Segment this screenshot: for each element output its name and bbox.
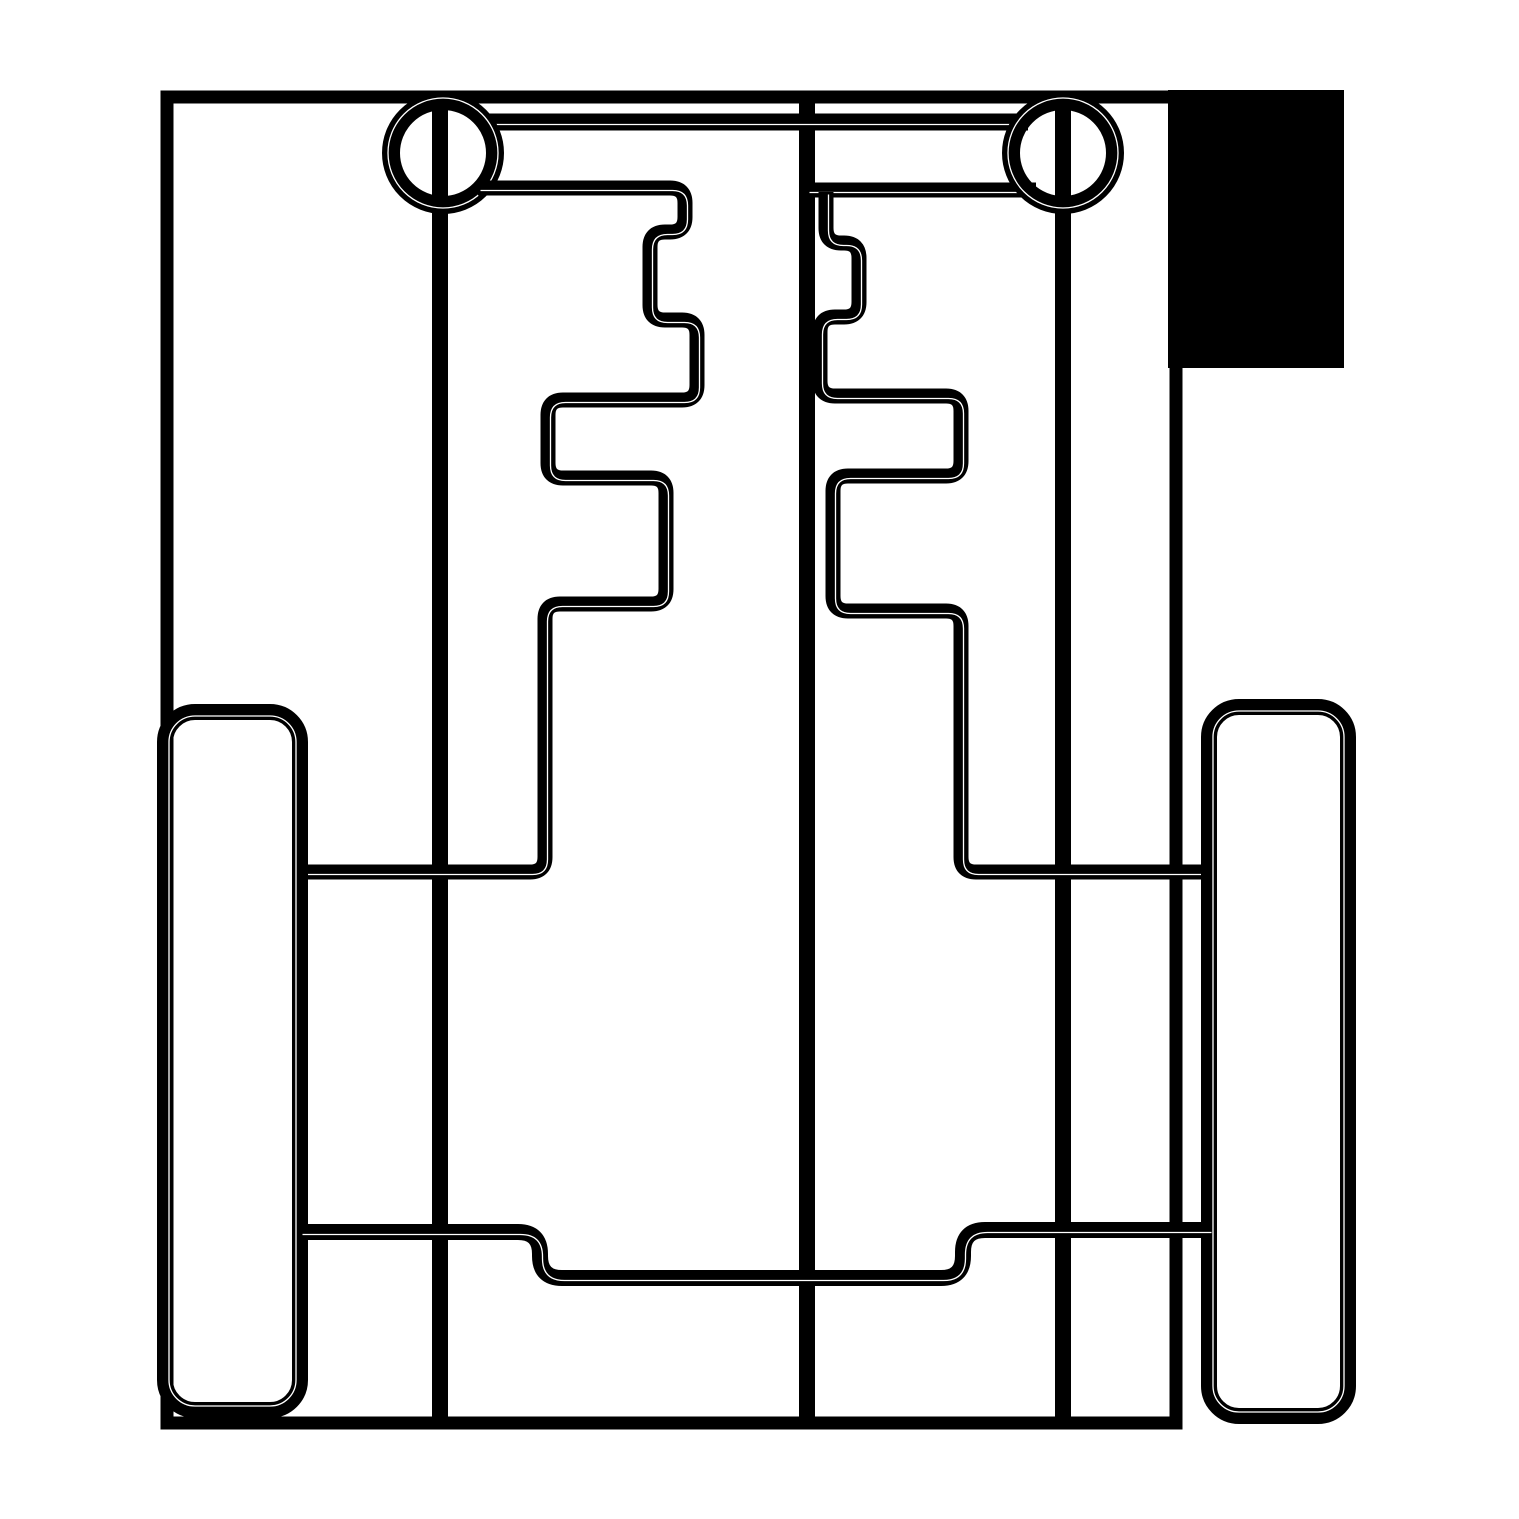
technical-line-drawing: [0, 0, 1519, 1519]
diagram-stage: [0, 0, 1519, 1519]
filled-corner-block: [1168, 90, 1344, 368]
